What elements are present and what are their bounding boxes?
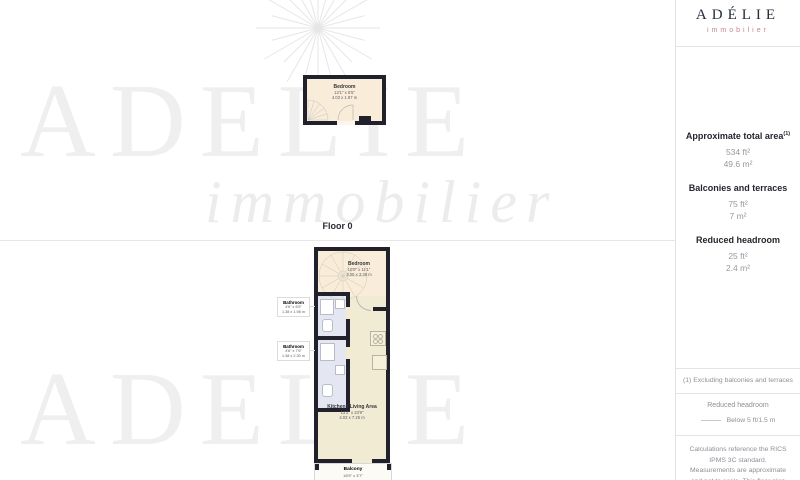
headroom-ft: 25 ft² (676, 250, 800, 262)
bathroom-2-callout: Bathroom 4'6" x 7'6" 1.38 x 2.30 m (277, 341, 310, 361)
room-dim-m: 1.38 x 1.98 m (278, 310, 309, 315)
total-area-group: Approximate total area(1) 534 ft² 49.6 m… (676, 131, 800, 170)
room-dim-m: 4.03 x 7.25 m (314, 415, 390, 420)
reduced-headroom-line-icon (701, 420, 721, 421)
kitchen-sink-fixture (372, 355, 387, 370)
burner-icon (378, 339, 383, 344)
area-stats: Approximate total area(1) 534 ft² 49.6 m… (676, 131, 800, 287)
brand-name: ADÉLIE (676, 7, 800, 24)
wall-segment (387, 464, 391, 470)
info-sidebar: ADÉLIE immobilier Approximate total area… (675, 0, 800, 480)
door-opening (346, 307, 350, 319)
legend-row: Below 5 ft/1.5 m (676, 417, 800, 424)
wall-segment (373, 307, 386, 311)
total-area-ft: 534 ft² (676, 146, 800, 158)
spiral-stair-icon (307, 99, 329, 121)
legend-label: Below 5 ft/1.5 m (727, 417, 776, 424)
room-label-kitchen-living: Kitchen / Living Area 13'2" x 23'9" 4.03… (314, 404, 390, 420)
plan-canvas: ADELIE immobilier ADELIE (0, 0, 675, 480)
title-text: Approximate total area (686, 131, 784, 141)
legend-section: Reduced headroom Below 5 ft/1.5 m (676, 393, 800, 435)
balcony-room: Balcony 18'5" x 3'7" (314, 463, 392, 480)
watermark-text-bottom: ADELIE (20, 348, 483, 469)
wall-segment (359, 116, 371, 121)
room-dim-m: 3.05 x 3.39 m (328, 272, 390, 277)
watermark-text: ADELIE (20, 60, 483, 181)
room-dim-m: 4.03 x 1.97 m (303, 95, 386, 100)
door-opening (337, 121, 355, 125)
sink-fixture (335, 365, 345, 375)
footnote-text: (1) Excluding balconies and terraces (683, 377, 793, 384)
toilet-fixture (322, 319, 333, 332)
footnote-section: (1) Excluding balconies and terraces (676, 368, 800, 393)
lower-floor-plan: Bedroom 10'0" x 11'1" 3.05 x 3.39 m Kitc… (314, 247, 390, 463)
footnote-marker: (1) (783, 131, 790, 137)
balconies-ft: 75 ft² (676, 198, 800, 210)
bathroom-1-callout: Bathroom 4'6" x 6'5" 1.38 x 1.98 m (277, 297, 310, 317)
total-area-m: 49.6 m² (676, 158, 800, 170)
wall-segment (318, 336, 346, 340)
cooktop-fixture (370, 331, 386, 346)
wall-segment (315, 464, 319, 470)
bathroom-1-room (318, 296, 346, 336)
brand-logo: ADÉLIE immobilier (676, 0, 800, 47)
balconies-group: Balconies and terraces 75 ft² 7 m² (676, 183, 800, 222)
headroom-group: Reduced headroom 25 ft² 2.4 m² (676, 235, 800, 274)
disclaimer-text: Calculations reference the RICS IPMS 3C … (689, 446, 786, 480)
balconies-title: Balconies and terraces (676, 183, 800, 193)
floor-divider (0, 240, 675, 241)
door-opening (346, 347, 350, 359)
total-area-title: Approximate total area(1) (676, 131, 800, 141)
shower-fixture (320, 343, 335, 361)
door-swing-icon (337, 104, 354, 121)
toilet-fixture (322, 384, 333, 397)
balconies-m: 7 m² (676, 210, 800, 222)
room-label-bedroom: Bedroom 10'0" x 11'1" 3.05 x 3.39 m (328, 261, 390, 277)
room-dim-ft: 18'5" x 3'7" (315, 473, 391, 478)
brand-tagline: immobilier (676, 27, 800, 34)
floor-0-plan: Bedroom 13'1" x 6'5" 4.03 x 1.97 m (303, 75, 386, 125)
headroom-title: Reduced headroom (676, 235, 800, 245)
floor-0-label: Floor 0 (0, 221, 675, 231)
legend-title: Reduced headroom (676, 402, 800, 409)
disclaimer-section: Calculations reference the RICS IPMS 3C … (676, 435, 800, 480)
bathroom-2-room (318, 340, 346, 408)
headroom-m: 2.4 m² (676, 262, 800, 274)
floorplan-page: ADELIE immobilier ADELIE (0, 0, 800, 480)
room-label-floor0-bedroom: Bedroom 13'1" x 6'5" 4.03 x 1.97 m (303, 84, 386, 100)
callout-leader-line (310, 350, 315, 351)
room-dim-m: 1.38 x 2.30 m (278, 354, 309, 359)
callout-leader-line (310, 306, 315, 307)
